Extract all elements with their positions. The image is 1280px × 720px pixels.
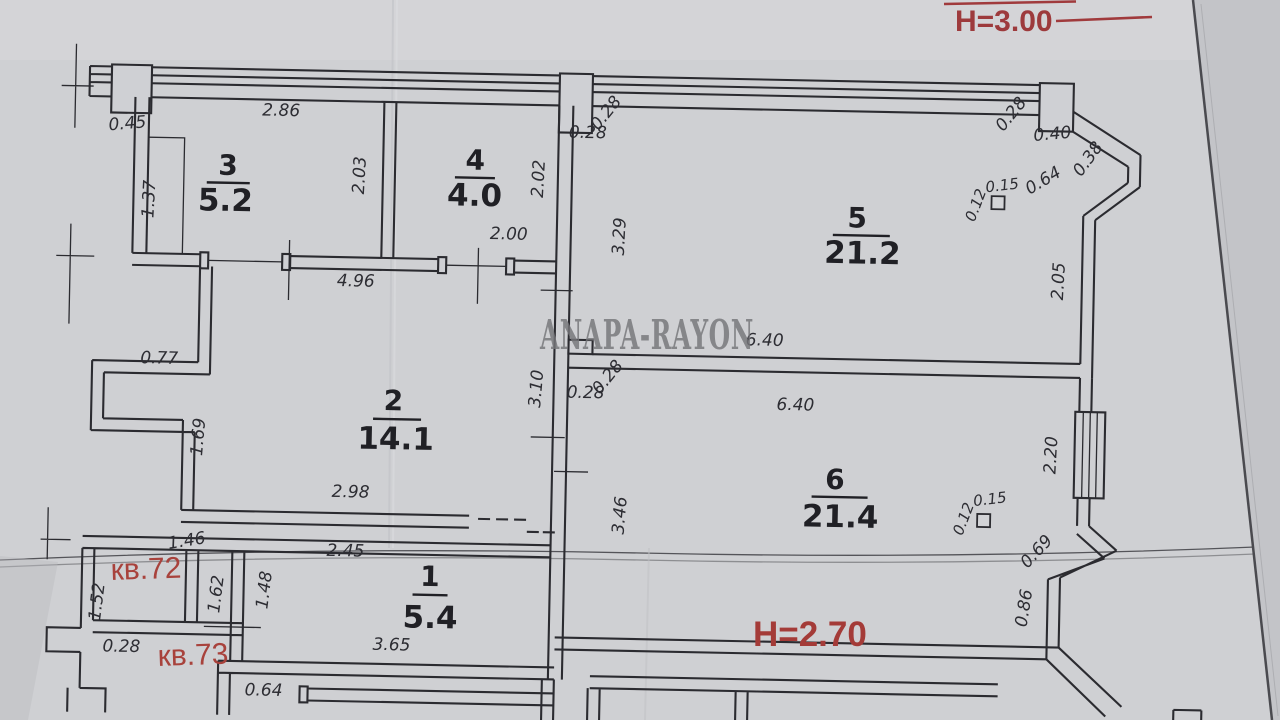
- dim-shaft-028: 0.28: [102, 636, 140, 657]
- dim-room5-left: 3.29: [609, 217, 631, 256]
- dim-room1-top: 2.45: [326, 541, 364, 562]
- dim-room6-left: 3.46: [609, 495, 632, 535]
- apartment-72-label: кв.72: [110, 552, 182, 587]
- room-4-number: 4: [465, 144, 485, 177]
- dim-room5-right: 2.05: [1048, 262, 1070, 301]
- floor-plan-photo: 2.86 0.45 1.37 2.03 2.02 2.00 4.96 0.28 …: [0, 0, 1280, 720]
- room-6-number: 6: [825, 463, 845, 496]
- room-2-underline: [373, 419, 421, 420]
- dim-room1-bottom: 3.65: [372, 635, 410, 656]
- dim-corridor-310: 3.10: [525, 369, 548, 409]
- dim-room2-left: 1.69: [187, 417, 210, 457]
- room-3-number: 3: [218, 149, 238, 182]
- room-4-area: 4.0: [447, 177, 503, 214]
- dim-passage-064: 0.64: [244, 680, 282, 701]
- room-1-area: 5.4: [402, 599, 458, 636]
- room-6-area: 21.4: [802, 498, 879, 536]
- apartment-73-label: кв.73: [157, 638, 229, 673]
- floor-plan-drawing: 2.86 0.45 1.37 2.03 2.02 2.00 4.96 0.28 …: [0, 0, 1280, 720]
- dim-top-width: 2.86: [262, 100, 300, 121]
- dim-niche-077: 0.77: [140, 348, 178, 369]
- paper-light-top: [0, 0, 1280, 60]
- door-post: [506, 258, 514, 274]
- wall-pier-left: [111, 64, 152, 113]
- ceiling-height-bottom-label: Н=2.70: [753, 615, 867, 654]
- dim-wall56-lower: 6.40: [776, 395, 814, 416]
- dim-room4-door: 2.00: [490, 224, 528, 245]
- room-1-number: 1: [420, 560, 440, 593]
- room-5-number: 5: [847, 201, 867, 234]
- dim-hall-width: 4.96: [337, 271, 375, 292]
- dim-room3-depth: 2.03: [349, 156, 371, 195]
- room-1-underline: [413, 595, 448, 596]
- dim-room2-bottom: 2.98: [331, 482, 369, 503]
- dim-bay-040: 0.40: [1033, 123, 1072, 146]
- watermark-text: ANAPA-RAYON: [539, 311, 754, 359]
- room5-column: [991, 196, 1004, 209]
- dim-room4-depth: 2.02: [528, 159, 550, 198]
- room-6-underline: [812, 497, 868, 498]
- dim-niche-width: 0.45: [108, 112, 147, 135]
- ceiling-height-top-label: Н=3.00: [955, 5, 1053, 38]
- door-post: [299, 686, 307, 702]
- door-post: [438, 257, 446, 273]
- room-3-area: 5.2: [198, 182, 254, 219]
- door-post: [200, 252, 208, 268]
- room-2-area: 14.1: [357, 420, 434, 458]
- room6-column: [977, 514, 990, 527]
- room-5-area: 21.2: [824, 235, 901, 273]
- dim-room6-window: 2.20: [1040, 436, 1062, 475]
- dim-duct-height: 1.37: [138, 179, 160, 218]
- room-2-number: 2: [383, 384, 403, 417]
